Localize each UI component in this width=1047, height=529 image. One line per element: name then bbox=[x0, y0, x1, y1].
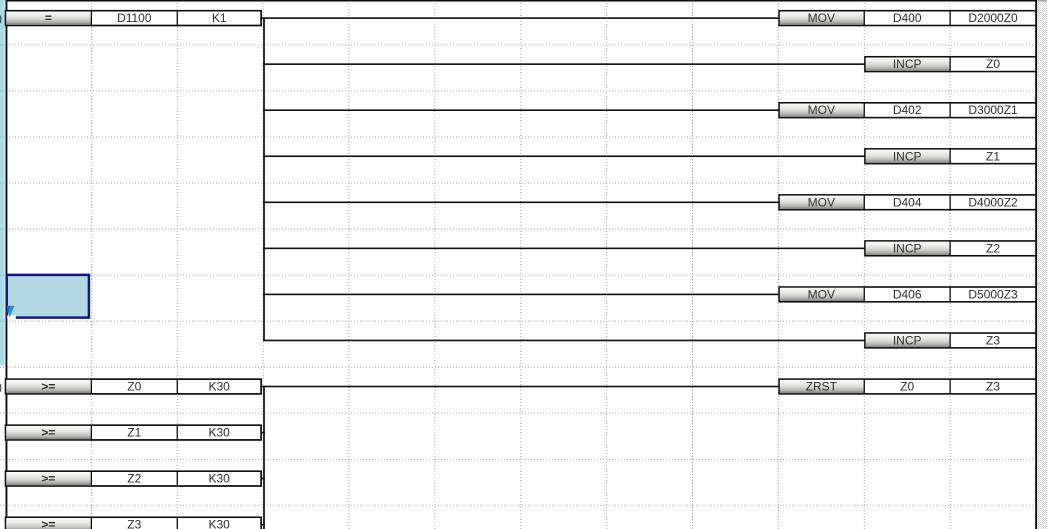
svg-text:D400: D400 bbox=[893, 11, 922, 25]
svg-text:K30: K30 bbox=[209, 426, 231, 440]
svg-text:INCP: INCP bbox=[893, 241, 922, 255]
svg-text:Z3: Z3 bbox=[127, 518, 141, 529]
svg-text:K30: K30 bbox=[209, 380, 231, 394]
svg-text:Z1: Z1 bbox=[127, 426, 141, 440]
svg-text:D1100: D1100 bbox=[117, 11, 152, 25]
svg-text:D2000Z0: D2000Z0 bbox=[968, 11, 1018, 25]
svg-text:D404: D404 bbox=[893, 195, 922, 209]
svg-text:INCP: INCP bbox=[893, 333, 922, 347]
svg-text:>=: >= bbox=[41, 380, 55, 394]
svg-text:Z3: Z3 bbox=[986, 380, 1000, 394]
svg-text:MOV: MOV bbox=[808, 287, 835, 301]
svg-text:K1: K1 bbox=[212, 11, 227, 25]
svg-text:Z2: Z2 bbox=[127, 472, 141, 486]
svg-text:K30: K30 bbox=[209, 518, 231, 529]
svg-text:K30: K30 bbox=[209, 472, 231, 486]
svg-text:Z2: Z2 bbox=[986, 241, 1000, 255]
svg-text:ZRST: ZRST bbox=[806, 380, 838, 394]
svg-text:MOV: MOV bbox=[808, 195, 835, 209]
svg-text:MOV: MOV bbox=[808, 11, 835, 25]
svg-text:>=: >= bbox=[41, 426, 55, 440]
svg-text:D5000Z3: D5000Z3 bbox=[968, 287, 1018, 301]
svg-text:Z0: Z0 bbox=[900, 380, 914, 394]
svg-text:D402: D402 bbox=[893, 103, 922, 117]
svg-text:D4000Z2: D4000Z2 bbox=[968, 195, 1018, 209]
svg-text:Z0: Z0 bbox=[127, 380, 141, 394]
svg-text:D3000Z1: D3000Z1 bbox=[968, 103, 1018, 117]
svg-text:MOV: MOV bbox=[808, 103, 835, 117]
svg-text:INCP: INCP bbox=[893, 149, 922, 163]
svg-text:>=: >= bbox=[41, 472, 55, 486]
svg-text:Z1: Z1 bbox=[986, 149, 1000, 163]
svg-text:): ) bbox=[0, 13, 2, 25]
svg-text:INCP: INCP bbox=[893, 57, 922, 71]
svg-text:): ) bbox=[0, 382, 2, 394]
svg-text:D406: D406 bbox=[893, 287, 922, 301]
svg-text:Z0: Z0 bbox=[986, 57, 1000, 71]
svg-text:Z3: Z3 bbox=[986, 333, 1000, 347]
svg-text:>=: >= bbox=[41, 518, 55, 529]
svg-text:=: = bbox=[45, 11, 52, 25]
